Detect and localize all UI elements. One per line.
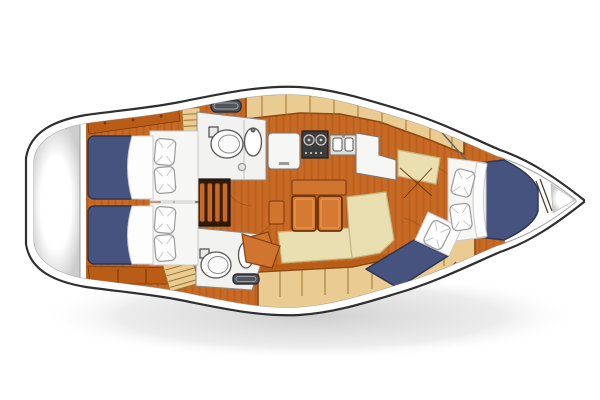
yacht-floorplan-image <box>0 0 600 400</box>
aft-lower-sheet <box>128 206 154 264</box>
step-tread <box>215 183 220 222</box>
pillow <box>154 234 176 262</box>
table-leaf-left <box>292 196 316 231</box>
pillow <box>154 166 176 194</box>
faucet-upper <box>251 128 255 132</box>
floor-plan-canvas <box>0 0 600 400</box>
table-leaf-right <box>318 196 342 231</box>
companionway-steps <box>196 179 230 226</box>
pillow <box>154 138 176 166</box>
step-tread <box>222 183 227 222</box>
sideboard <box>292 180 346 195</box>
saloon-seat <box>269 201 284 224</box>
hatch-lower <box>233 274 259 284</box>
fridge-handle <box>279 162 289 165</box>
shower-drain <box>238 163 245 170</box>
aft-upper-sheet <box>128 136 154 199</box>
settee-bottom-cushion <box>278 228 354 263</box>
stove-2-burner <box>302 131 328 158</box>
pillow <box>154 206 176 234</box>
stern-bulkhead <box>80 112 87 292</box>
step-tread <box>200 183 205 222</box>
pillow <box>449 203 472 232</box>
step-tread <box>207 183 212 222</box>
